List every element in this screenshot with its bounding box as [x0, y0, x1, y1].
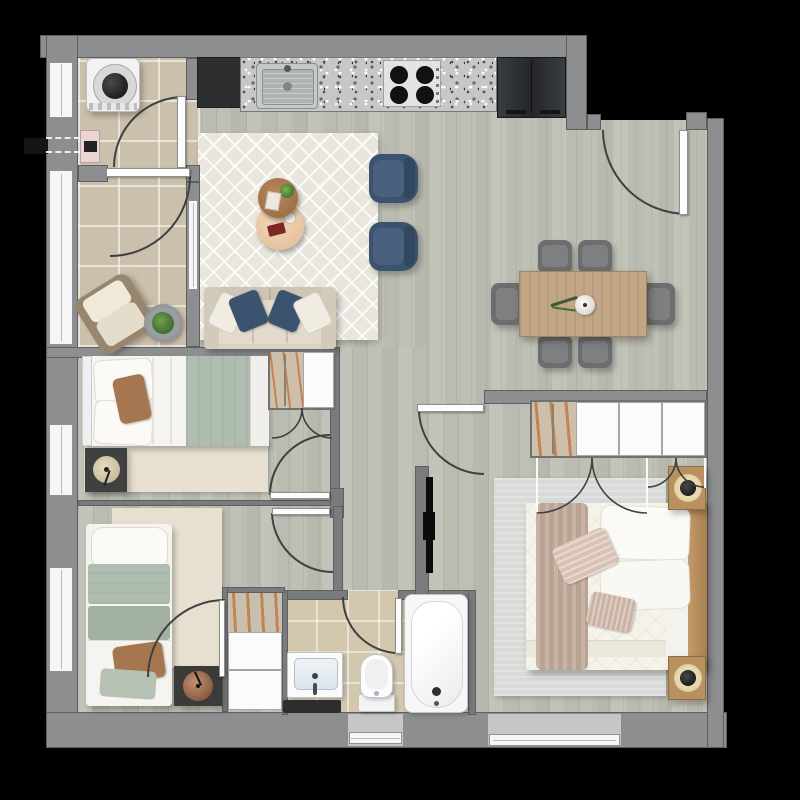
- refrigerator: [497, 57, 566, 118]
- armchair-cushion: [373, 160, 404, 197]
- bifold-leaf-line: [646, 458, 648, 512]
- burner: [390, 66, 408, 84]
- bedroom1-wardrobe: [268, 350, 336, 410]
- washing-machine: [86, 58, 140, 112]
- sofa-back-divider: [269, 288, 271, 300]
- bathroom-door-leaf: [395, 598, 402, 654]
- burner: [390, 86, 408, 104]
- bedroom2-door-leaf: [272, 508, 330, 515]
- table-plant: [280, 184, 294, 198]
- wall-entry-return: [566, 35, 587, 130]
- wardrobe-hangers: [270, 352, 303, 408]
- wall-entry-jamb-right: [686, 112, 707, 130]
- master-nightstand: [668, 466, 706, 510]
- refrigerator-divider: [531, 60, 532, 112]
- balcony-interior-window: [188, 200, 198, 290]
- closet2-door-leaf: [219, 600, 225, 677]
- bedroom2-nightstand: [174, 666, 222, 706]
- bedroom1-nightstand: [85, 448, 127, 492]
- bifold-leaf-line: [536, 458, 538, 512]
- bedroom1-door-leaf: [270, 492, 330, 499]
- coffee-table-wood: [258, 178, 298, 218]
- laundry-door-leaf: [177, 96, 186, 168]
- burner: [416, 66, 434, 84]
- bed-foot-fold: [250, 356, 269, 446]
- cooktop-knobs: [436, 67, 439, 103]
- wardrobe-door-panel: [303, 352, 334, 408]
- wall-tv-center: [423, 512, 435, 540]
- navy-armchair: [369, 154, 418, 203]
- master-closet: [530, 400, 707, 458]
- sprig: [550, 296, 578, 308]
- master-door-leaf: [417, 404, 484, 412]
- armchair-back: [404, 158, 415, 199]
- closet2-panel: [228, 670, 282, 710]
- dining-chair: [538, 336, 572, 368]
- wall-entry-jamb-left: [587, 114, 601, 130]
- bed-headboard: [82, 356, 92, 446]
- lamp-shade: [680, 480, 696, 496]
- washer-drum: [93, 64, 137, 108]
- closet2-panel: [228, 632, 282, 670]
- toilet-seat: [365, 659, 388, 689]
- wall-laundry-balcony-stub: [78, 165, 108, 182]
- armchair-cushion: [373, 228, 404, 265]
- wall-bathroom-master: [468, 590, 476, 715]
- closet-hangers: [532, 402, 576, 456]
- chair-seat: [582, 245, 608, 267]
- wardrobe-rod: [284, 354, 286, 406]
- vanity-faucet: [313, 683, 317, 695]
- dining-table: [519, 271, 647, 337]
- bed-sage-blanket: [186, 356, 250, 446]
- utility-box: [80, 130, 100, 163]
- bifold-leaf-line: [704, 458, 706, 488]
- chair-seat: [582, 341, 608, 363]
- bathtub: [404, 594, 468, 713]
- wall-bathroom-top-left: [285, 590, 348, 600]
- toilet-bowl: [360, 654, 393, 698]
- closet-sliding-panel: [576, 402, 619, 456]
- bed-pillow: [91, 527, 168, 569]
- wall-right: [707, 118, 724, 748]
- floorplan-canvas: [0, 0, 800, 800]
- closet2-hangers: [228, 593, 282, 632]
- master-bed: [526, 503, 707, 670]
- lamp-shade: [680, 670, 696, 686]
- bedroom1-bed: [82, 356, 268, 446]
- dining-chair: [578, 240, 612, 272]
- master-nightstand: [668, 656, 706, 700]
- bath-mat: [283, 700, 341, 713]
- bed-throw-blanket: [536, 503, 588, 670]
- vanity-drain: [312, 673, 318, 679]
- kitchen-dark-cabinet: [197, 57, 242, 108]
- dining-chair: [578, 336, 612, 368]
- chair-seat: [648, 288, 670, 320]
- wall-top: [40, 35, 585, 58]
- bathroom-vanity: [287, 652, 343, 698]
- bedroom2-window: [49, 567, 73, 672]
- bed-fold-line: [170, 358, 172, 444]
- refrigerator-handle: [540, 110, 560, 114]
- closet-rod: [552, 404, 554, 454]
- dining-chair: [643, 283, 675, 325]
- bathroom-window: [349, 732, 402, 744]
- wall-bedroom2-hall: [333, 506, 343, 597]
- table-book: [265, 191, 282, 211]
- entry-door-leaf: [679, 130, 688, 215]
- chair-seat: [542, 245, 568, 267]
- refrigerator-handle: [506, 110, 526, 114]
- bedroom1-window: [49, 424, 73, 496]
- bed-fold-line: [152, 358, 154, 444]
- plant-leaves: [152, 312, 174, 334]
- burner: [416, 86, 434, 104]
- chair-seat: [542, 341, 568, 363]
- kitchen-sink: [256, 63, 318, 109]
- bed-frame-rail: [688, 503, 707, 670]
- bathtub-drain: [432, 687, 441, 696]
- book: [267, 222, 286, 237]
- toilet-button: [374, 691, 379, 696]
- sprig: [552, 306, 576, 311]
- closet-sliding-panel: [619, 402, 662, 456]
- wall-bedroom1-bedroom2: [78, 500, 344, 506]
- armchair-back: [404, 226, 415, 267]
- master-window: [489, 734, 620, 746]
- dining-chair: [538, 240, 572, 272]
- bowl-center: [583, 303, 587, 307]
- utility-box-slot: [84, 141, 97, 152]
- washer-drum-inner: [102, 73, 128, 99]
- bathtub-faucet: [434, 701, 439, 706]
- bed-sage-blanket-2: [88, 606, 170, 640]
- balcony-window: [49, 170, 73, 345]
- navy-armchair: [369, 222, 418, 271]
- bed-sage-blanket: [88, 564, 170, 604]
- kitchen-cooktop: [383, 60, 441, 107]
- centerpiece-bowl: [575, 295, 595, 315]
- closet-sliding-panel: [662, 402, 705, 456]
- sofa: [204, 287, 336, 349]
- wall-closet2-top: [222, 587, 285, 593]
- sink-faucet: [284, 65, 291, 72]
- bed-sage-pillow: [99, 668, 157, 700]
- utility-stub: [24, 138, 48, 154]
- bedroom2-bed: [86, 524, 172, 706]
- chair-seat: [496, 288, 518, 320]
- sink-drain: [283, 82, 292, 91]
- balcony-door-leaf: [106, 168, 190, 177]
- laundry-window: [49, 62, 73, 118]
- potted-plant: [144, 304, 182, 342]
- washer-controls: [89, 103, 137, 110]
- utility-dashed-line: [46, 137, 80, 153]
- entry-recess: [585, 28, 707, 120]
